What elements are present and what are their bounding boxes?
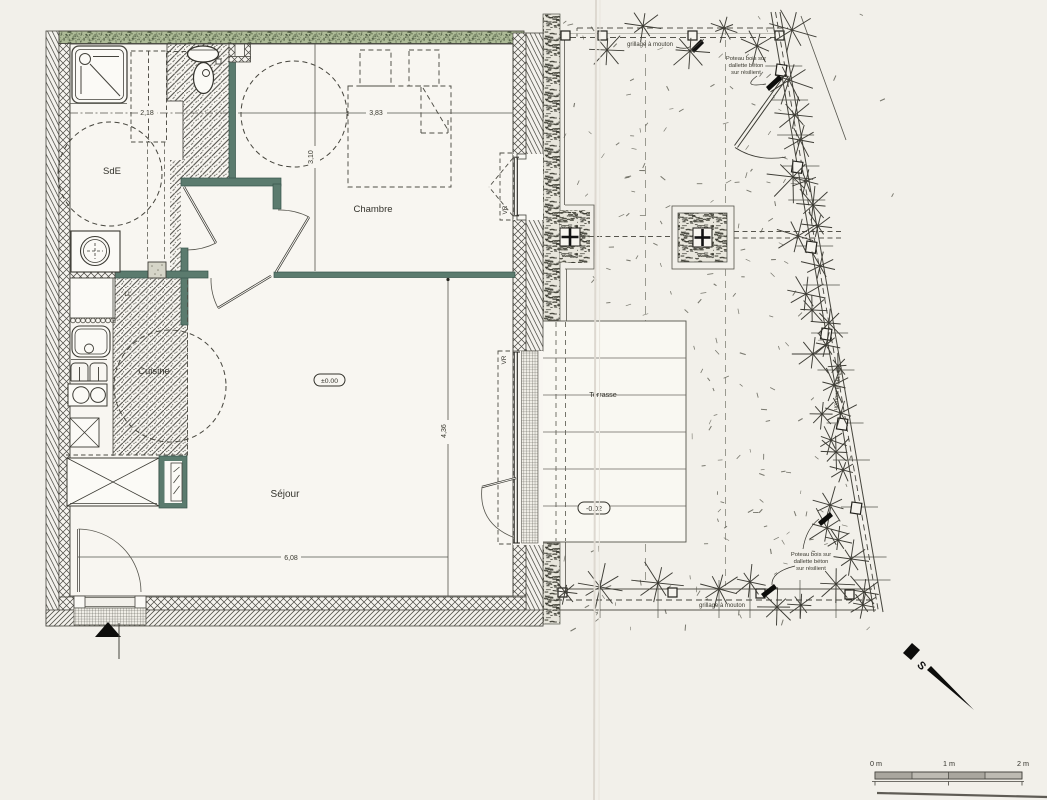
svg-text:1 m: 1 m: [943, 759, 955, 768]
svg-text:grillage à mouton: grillage à mouton: [627, 42, 673, 48]
svg-text:Terrasse: Terrasse: [589, 390, 617, 399]
svg-text:Cuisine: Cuisine: [138, 366, 170, 377]
svg-text:6,08: 6,08: [284, 555, 298, 562]
svg-text:2 m: 2 m: [1017, 759, 1029, 768]
svg-text:Poteau bois sur: Poteau bois sur: [726, 56, 766, 62]
svg-text:SdE: SdE: [103, 166, 121, 177]
svg-text:sur résilient: sur résilient: [796, 566, 826, 572]
svg-text:4,36: 4,36: [441, 424, 448, 438]
svg-text:sur résilient: sur résilient: [731, 70, 761, 76]
svg-text:Chambre: Chambre: [353, 204, 392, 215]
svg-text:grillage à mouton: grillage à mouton: [699, 603, 745, 609]
svg-text:dallette béton: dallette béton: [729, 63, 764, 69]
svg-text:LL: LL: [124, 291, 132, 298]
svg-text:dallette béton: dallette béton: [794, 559, 829, 565]
svg-text:VR: VR: [502, 205, 509, 214]
svg-text:Séjour: Séjour: [271, 489, 301, 500]
svg-text:±0.00: ±0.00: [321, 378, 338, 385]
svg-text:0 m: 0 m: [870, 759, 882, 768]
svg-text:3,10: 3,10: [308, 150, 315, 164]
svg-text:3,83: 3,83: [369, 110, 383, 117]
svg-text:VR: VR: [501, 355, 508, 364]
svg-text:Poteau bois sur: Poteau bois sur: [791, 552, 831, 558]
svg-text:2,18: 2,18: [140, 110, 154, 117]
